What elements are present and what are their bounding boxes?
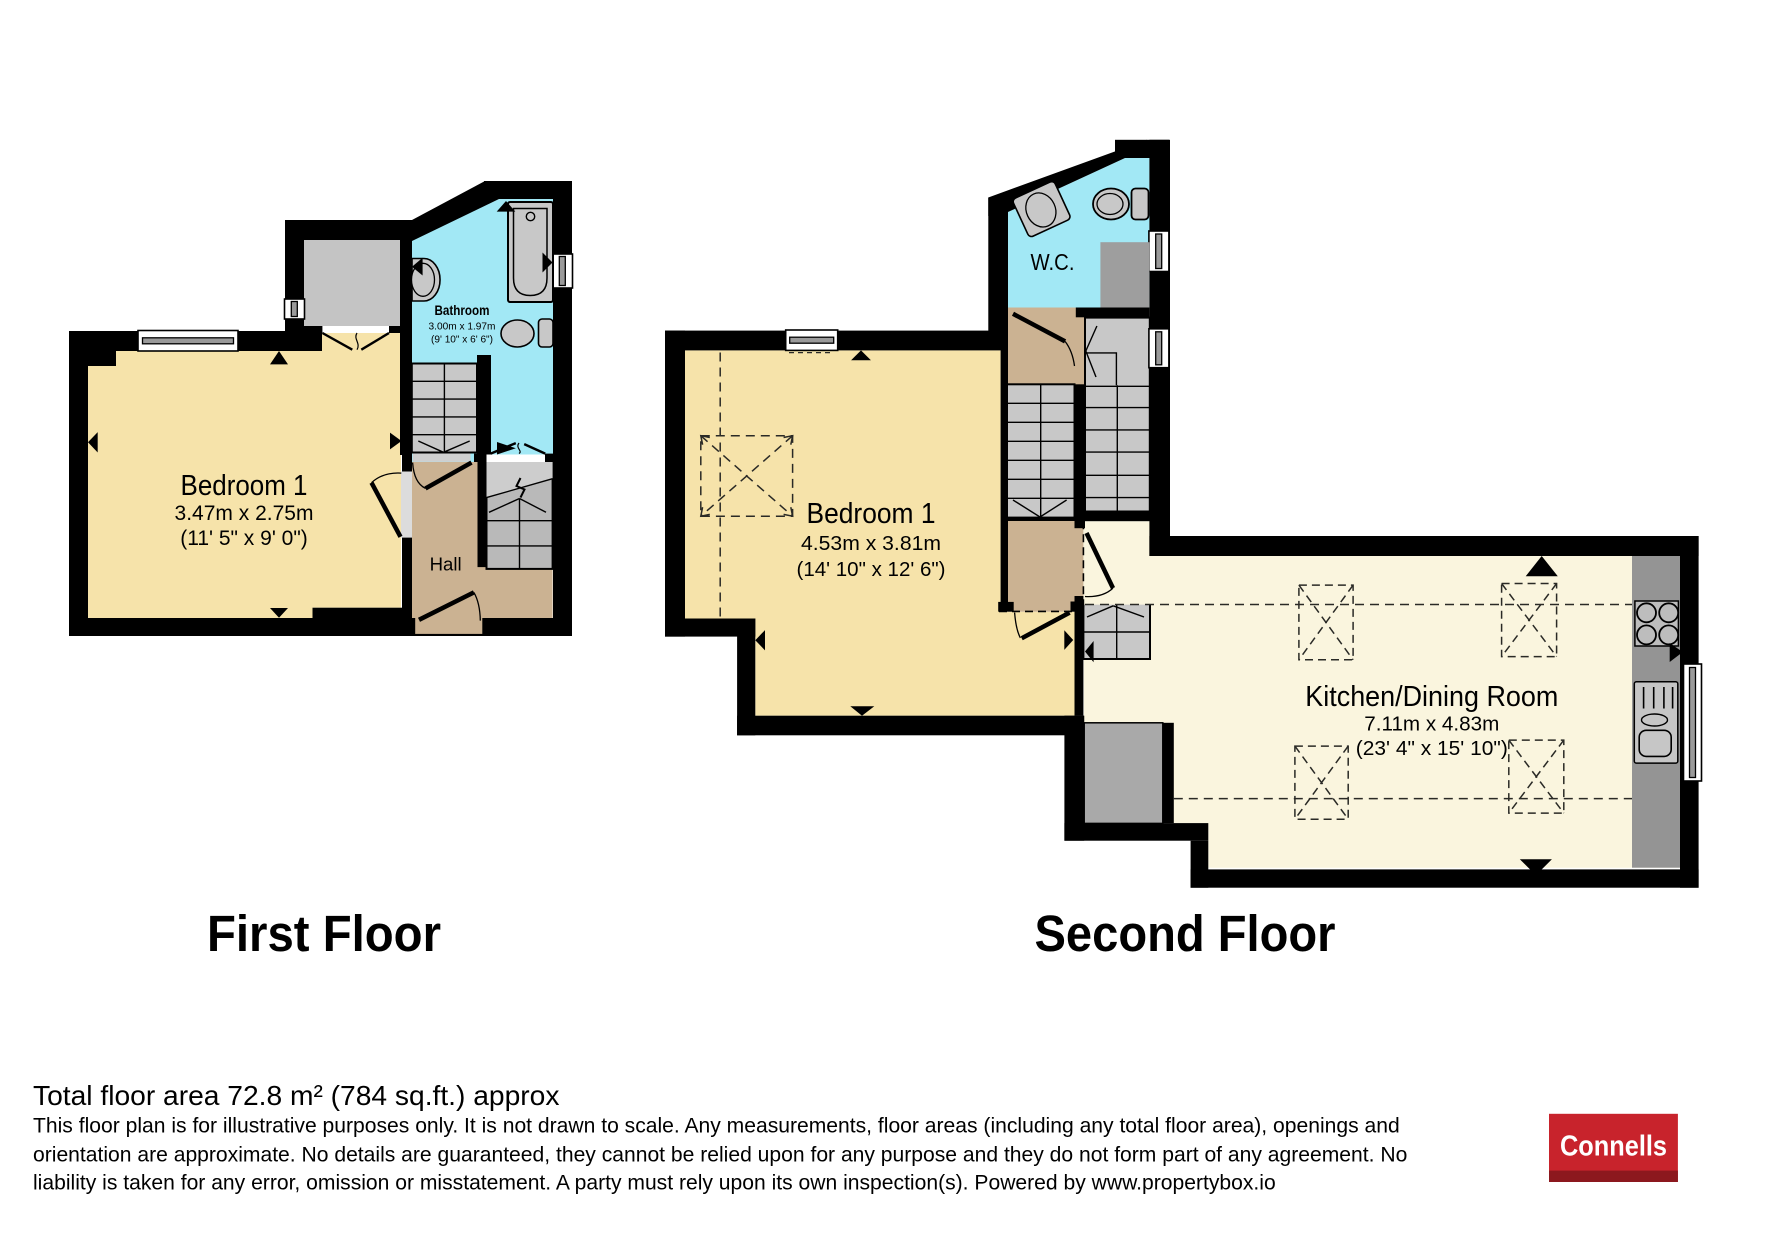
svg-text:This floor plan is for illustr: This floor plan is for illustrative purp… [33, 1115, 1400, 1138]
svg-text:3.47m x 2.75m: 3.47m x 2.75m [175, 502, 314, 525]
svg-text:W.C.: W.C. [1031, 249, 1075, 275]
svg-text:Hall: Hall [430, 554, 462, 575]
svg-text:First Floor: First Floor [207, 905, 441, 962]
svg-text:Bathroom: Bathroom [435, 303, 490, 318]
svg-text:Connells: Connells [1560, 1131, 1667, 1163]
svg-text:(14' 10" x 12' 6"): (14' 10" x 12' 6") [797, 559, 946, 581]
svg-text:Bedroom 1: Bedroom 1 [807, 498, 936, 530]
svg-text:(11' 5" x 9' 0"): (11' 5" x 9' 0") [180, 527, 308, 550]
svg-text:orientation are approximate. N: orientation are approximate. No details … [33, 1143, 1407, 1166]
svg-text:Total floor area 72.8 m² (784: Total floor area 72.8 m² (784 sq.ft.) ap… [33, 1079, 559, 1111]
svg-text:(9' 10" x 6' 6"): (9' 10" x 6' 6") [431, 334, 493, 346]
svg-text:3.00m x 1.97m: 3.00m x 1.97m [429, 321, 496, 333]
svg-text:4.53m x 3.81m: 4.53m x 3.81m [801, 533, 941, 555]
svg-text:7.11m x 4.83m: 7.11m x 4.83m [1364, 714, 1499, 736]
svg-text:Second Floor: Second Floor [1035, 905, 1336, 962]
svg-text:Bedroom 1: Bedroom 1 [181, 470, 308, 502]
svg-text:liability is taken for any err: liability is taken for any error, omissi… [33, 1172, 1276, 1195]
svg-text:Kitchen/Dining Room: Kitchen/Dining Room [1305, 681, 1558, 713]
svg-text:(23' 4" x 15' 10"): (23' 4" x 15' 10") [1356, 738, 1508, 760]
